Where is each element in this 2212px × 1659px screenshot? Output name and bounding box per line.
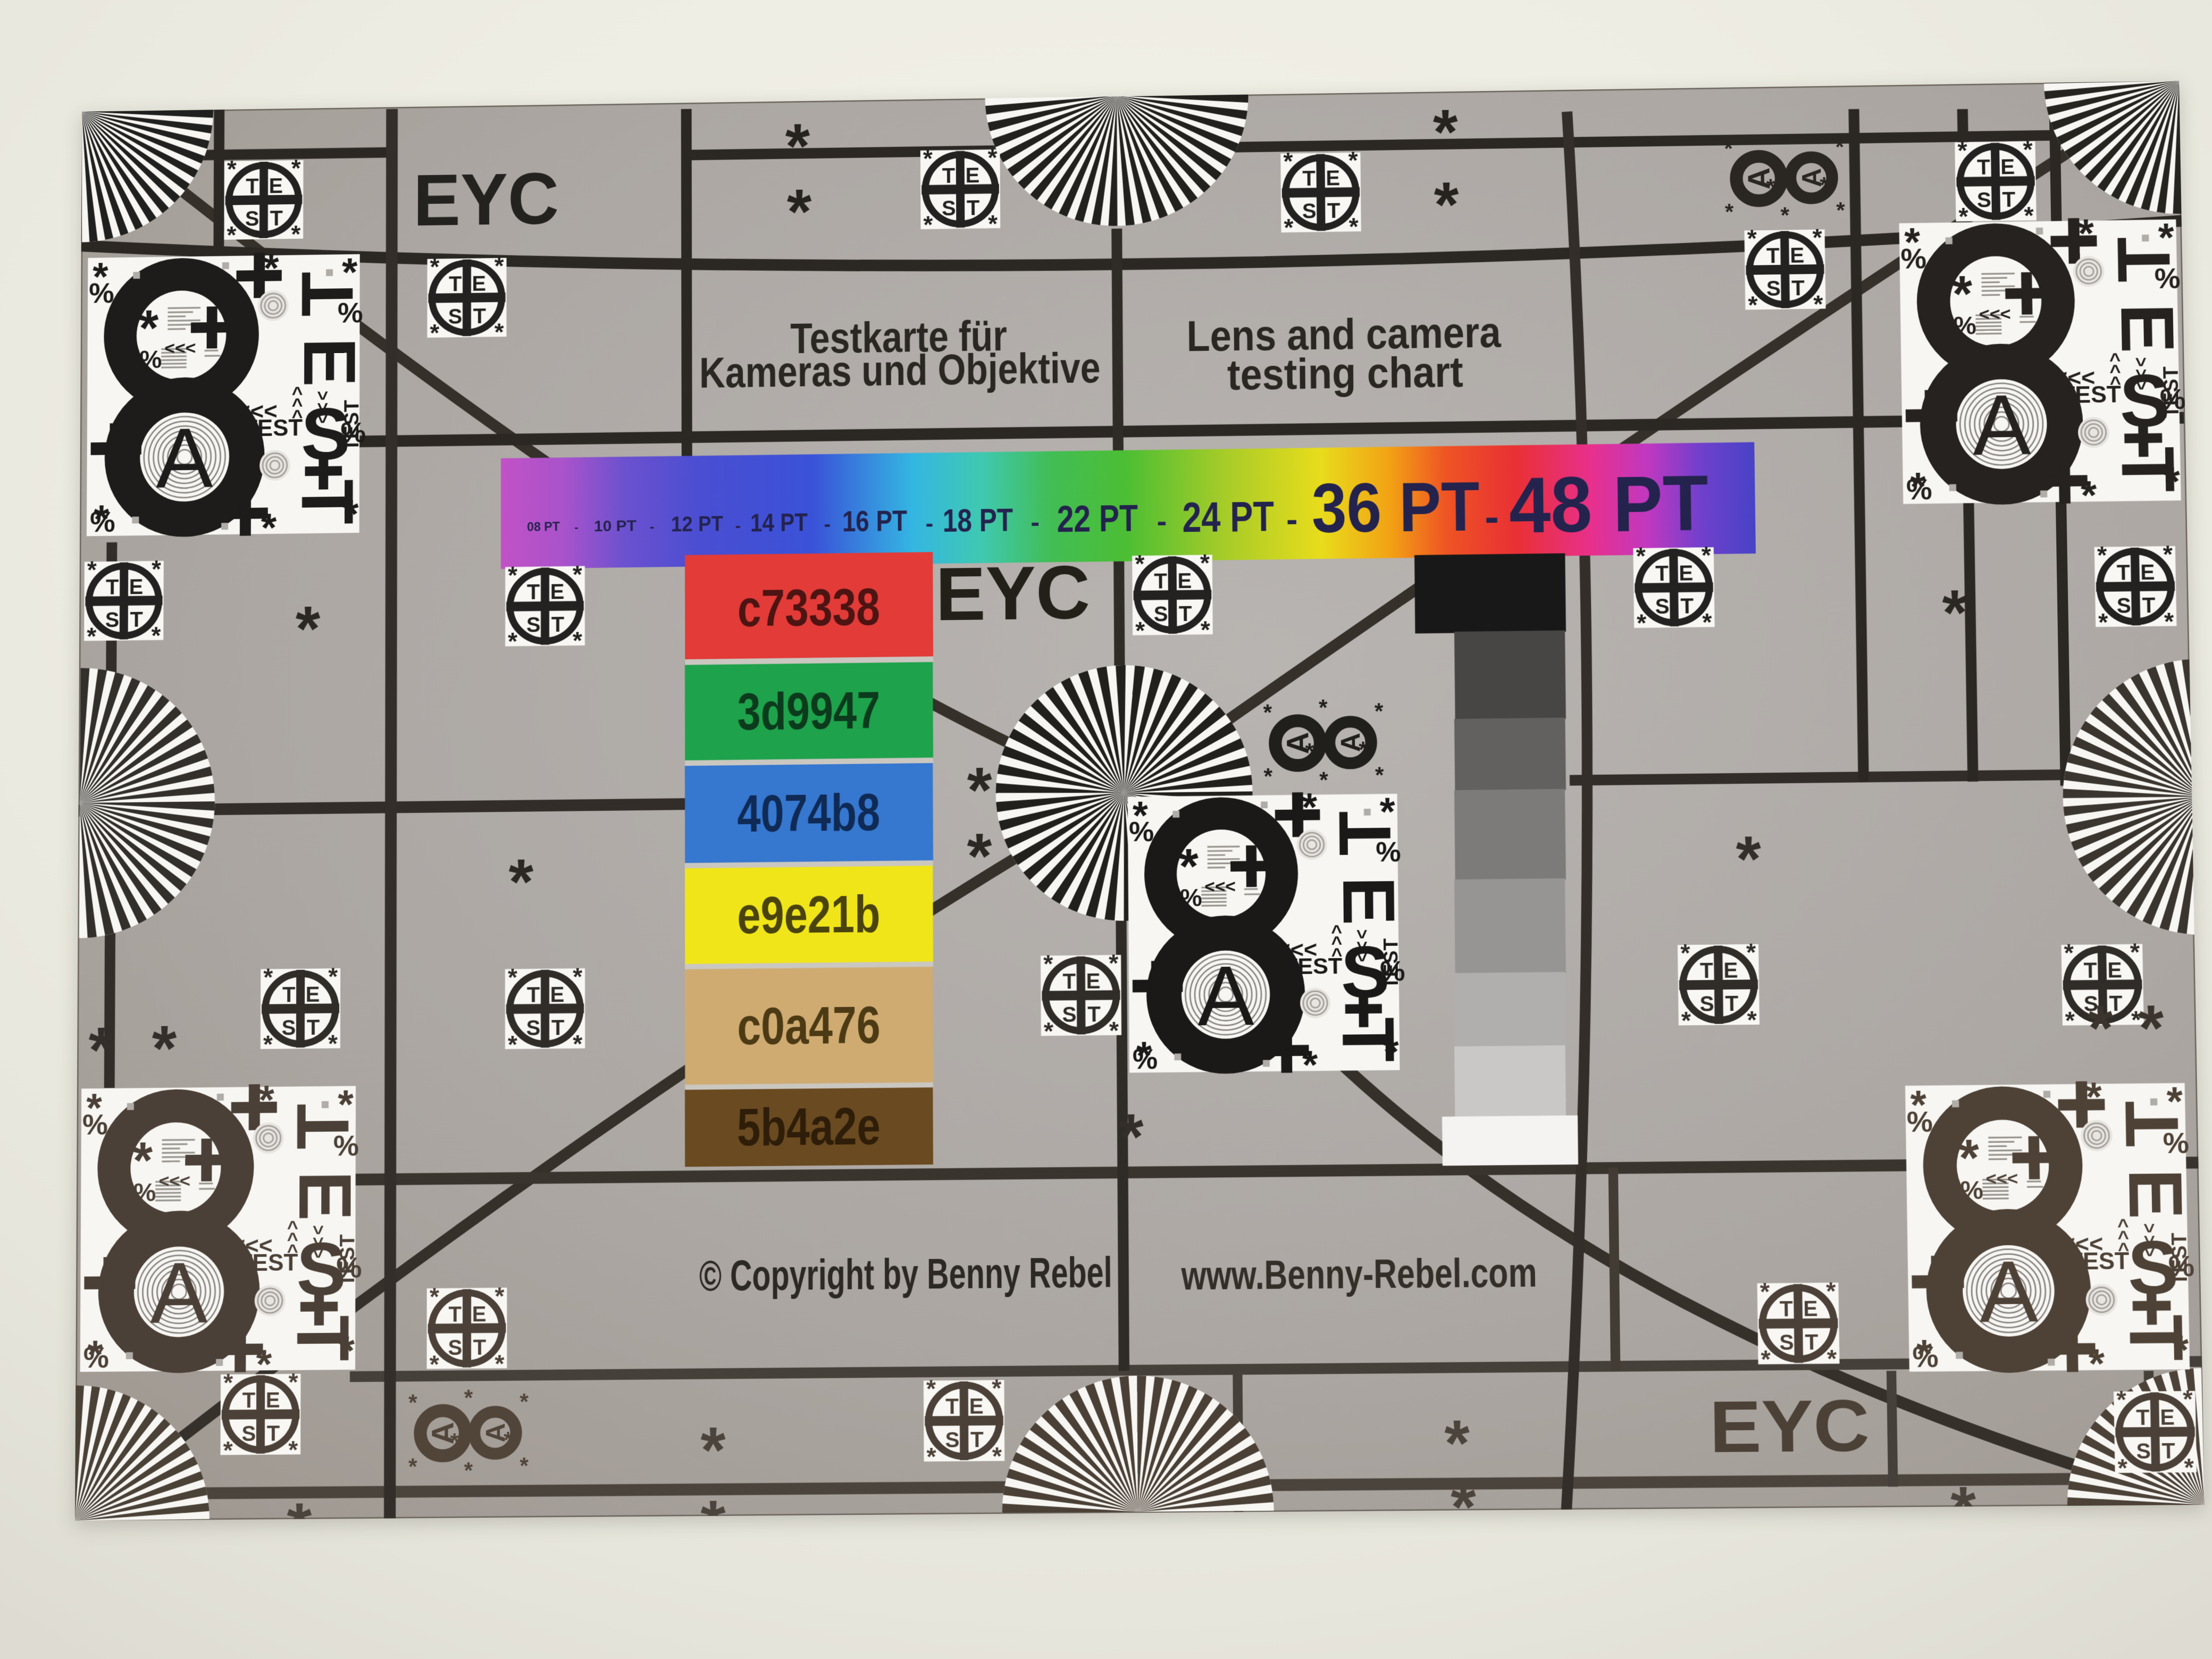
svg-text:*: * — [700, 1414, 725, 1486]
svg-text:3d9947: 3d9947 — [738, 682, 881, 741]
svg-text:*: * — [787, 177, 812, 247]
svg-text:EYC: EYC — [935, 551, 1091, 637]
svg-text:*: * — [287, 1490, 312, 1521]
svg-text:*: * — [1942, 577, 1968, 649]
svg-text:*: * — [2088, 992, 2114, 1065]
svg-text:36 PT: 36 PT — [1311, 466, 1480, 547]
svg-text:5b4a2e: 5b4a2e — [737, 1097, 881, 1157]
svg-text:-: - — [1157, 504, 1167, 538]
svg-text:e9e21b: e9e21b — [737, 885, 880, 945]
svg-text:*: * — [700, 1487, 725, 1521]
svg-text:*: * — [509, 846, 534, 918]
svg-text:*: * — [785, 111, 810, 182]
svg-text:14 PT: 14 PT — [750, 508, 808, 538]
svg-text:*: * — [1432, 97, 1458, 167]
svg-text:*: * — [2138, 992, 2165, 1065]
svg-text:*: * — [1434, 170, 1459, 241]
svg-text:18 PT: 18 PT — [943, 502, 1013, 539]
svg-text:12 PT: 12 PT — [671, 512, 723, 537]
svg-text:*: * — [152, 1012, 177, 1084]
svg-text:22 PT: 22 PT — [1057, 497, 1138, 540]
svg-text:-: - — [1286, 501, 1298, 539]
svg-text:Kameras und Objektive: Kameras und Objektive — [699, 343, 1101, 397]
svg-text:*: * — [1118, 1101, 1144, 1174]
svg-text:c73338: c73338 — [738, 579, 881, 638]
svg-text:24 PT: 24 PT — [1182, 492, 1274, 541]
svg-text:c0a476: c0a476 — [737, 996, 881, 1055]
svg-text:www.Benny-Rebel.com: www.Benny-Rebel.com — [1180, 1249, 1537, 1298]
svg-text:10 PT: 10 PT — [594, 517, 636, 535]
svg-text:08 PT: 08 PT — [527, 520, 560, 534]
svg-text:testing chart: testing chart — [1227, 348, 1463, 399]
svg-text:*: * — [967, 820, 992, 892]
svg-text:16 PT: 16 PT — [842, 504, 908, 538]
svg-text:-: - — [824, 513, 831, 536]
svg-text:4074b8: 4074b8 — [737, 784, 880, 843]
svg-text:-: - — [574, 521, 578, 534]
svg-text:EYC: EYC — [1709, 1386, 1870, 1469]
svg-text:-: - — [1030, 507, 1040, 537]
svg-text:*: * — [1736, 823, 1762, 895]
svg-text:*: * — [295, 594, 320, 665]
svg-text:-: - — [650, 520, 655, 534]
svg-text:-: - — [926, 510, 934, 537]
svg-text:EYC: EYC — [413, 157, 559, 241]
svg-text:*: * — [967, 755, 992, 826]
svg-text:-: - — [1485, 493, 1499, 541]
svg-text:48 PT: 48 PT — [1509, 459, 1709, 549]
svg-text:-: - — [735, 516, 741, 535]
svg-text:© Copyright by Benny Rebel: © Copyright by Benny Rebel — [699, 1249, 1112, 1300]
svg-text:*: * — [1444, 1407, 1470, 1480]
svg-text:*: * — [88, 1015, 113, 1086]
